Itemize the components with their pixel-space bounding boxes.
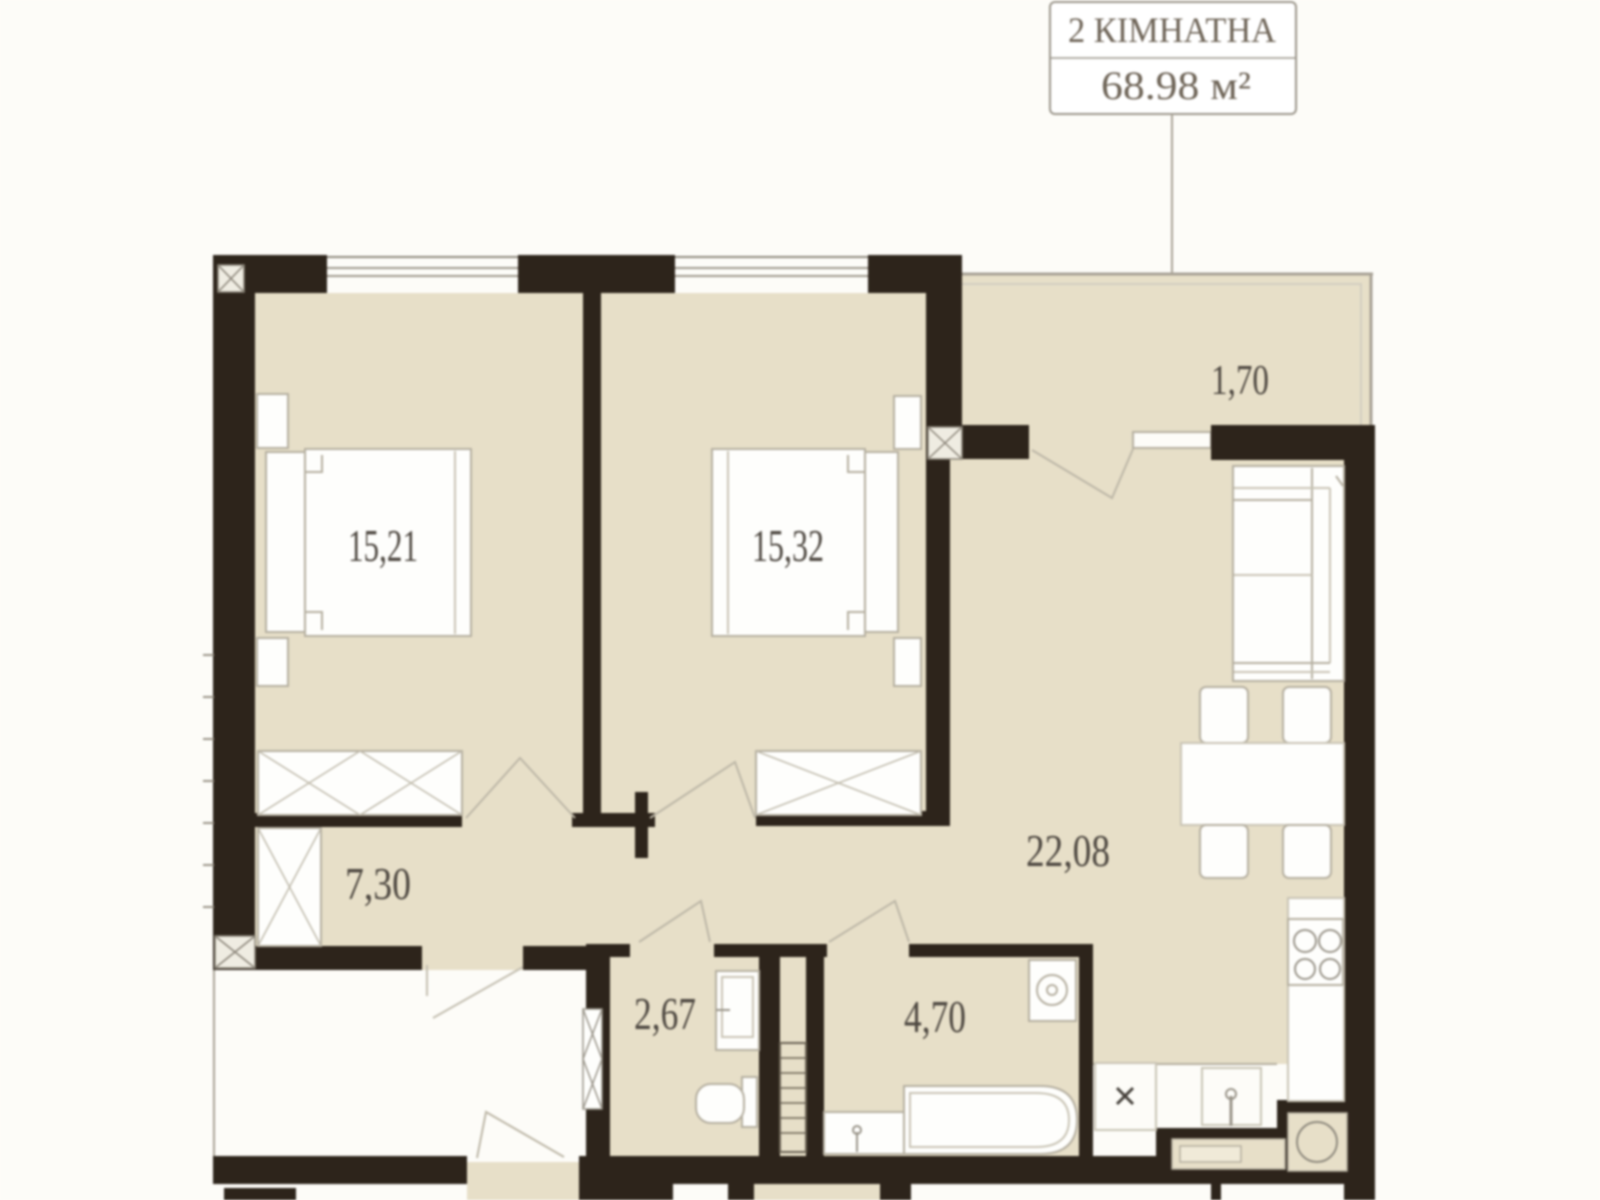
svg-text:15,32: 15,32 — [752, 520, 824, 571]
svg-text:2,67: 2,67 — [634, 988, 696, 1039]
svg-text:68.98 м²: 68.98 м² — [1101, 63, 1251, 108]
svg-text:4,70: 4,70 — [904, 991, 966, 1042]
svg-text:1,70: 1,70 — [1211, 358, 1269, 404]
svg-text:7,30: 7,30 — [345, 858, 411, 909]
svg-text:2 КІМНАТНА: 2 КІМНАТНА — [1068, 10, 1276, 50]
svg-text:15,21: 15,21 — [348, 520, 418, 571]
svg-text:22,08: 22,08 — [1026, 825, 1110, 876]
